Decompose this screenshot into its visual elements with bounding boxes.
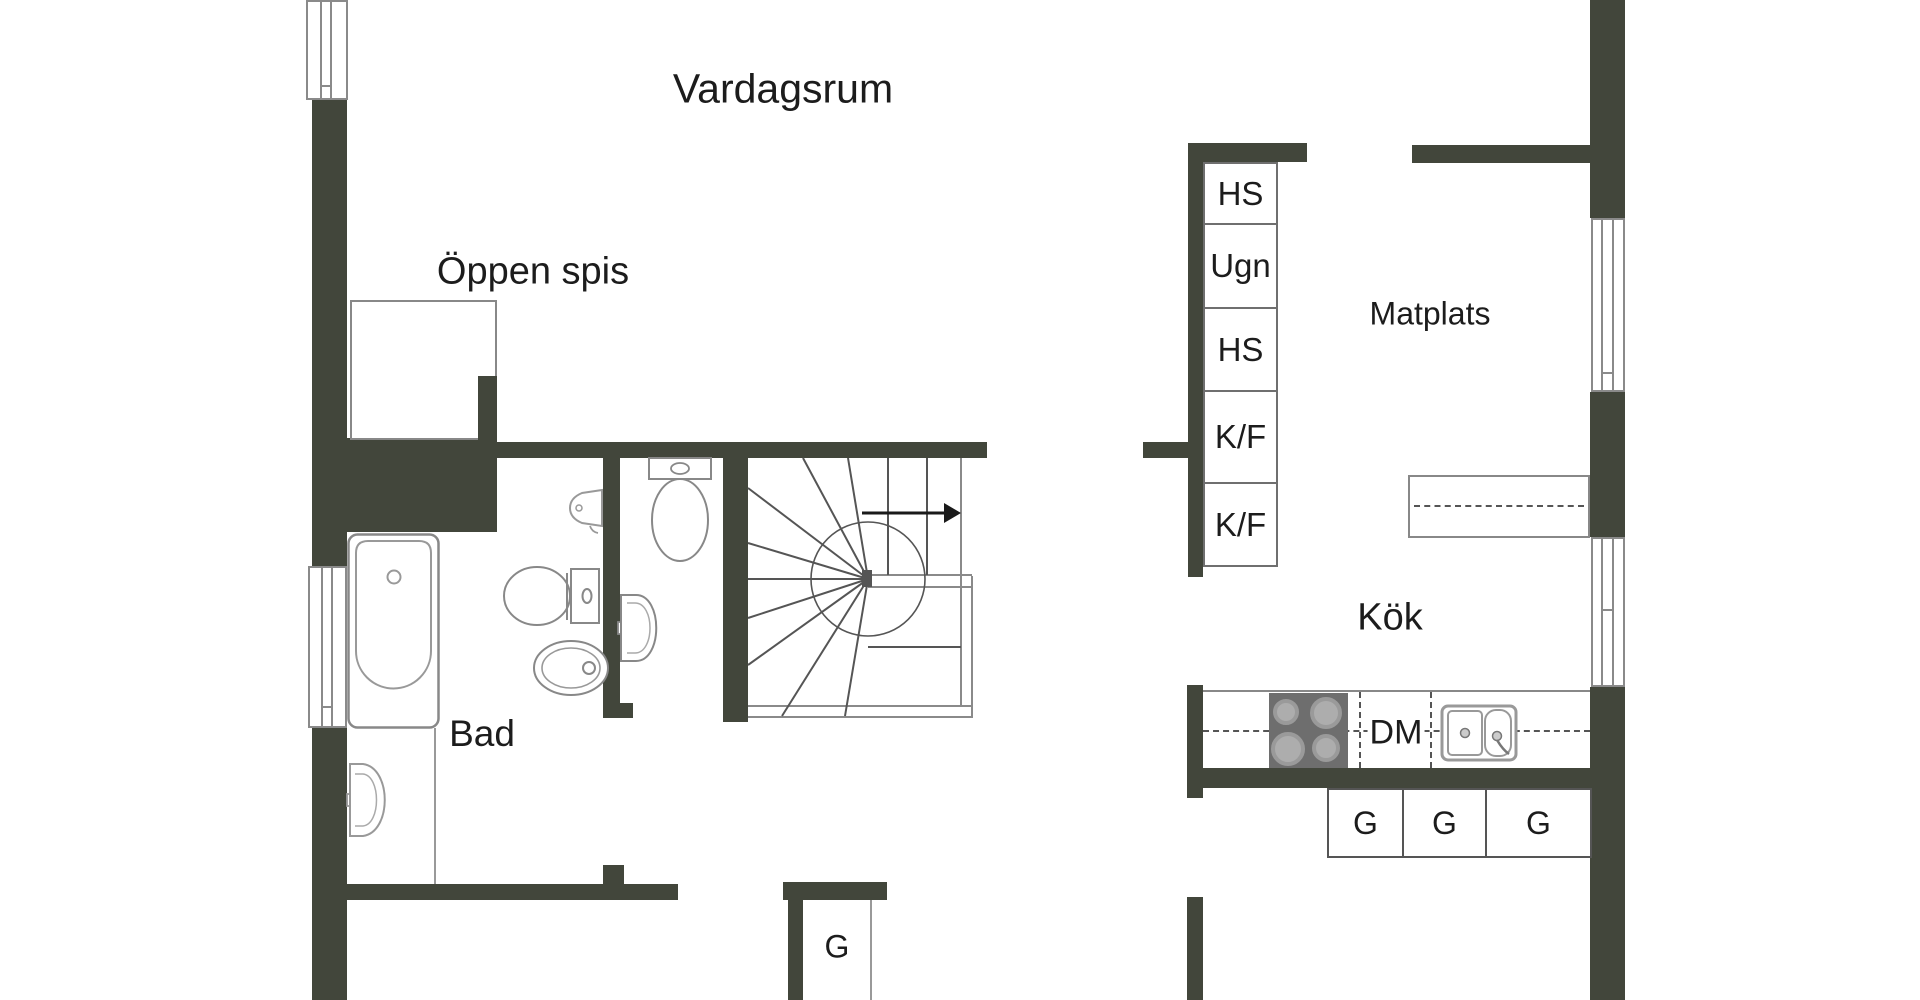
room-label-kok: Kök <box>1357 597 1422 640</box>
stair-center-post <box>862 570 872 587</box>
window-mullion <box>331 568 333 726</box>
stair-direction-arrow-icon <box>862 503 961 523</box>
window-mullion <box>1612 220 1614 390</box>
wall-right-lower <box>1590 687 1625 1000</box>
wardrobe-label: G <box>1353 805 1378 842</box>
dining-bench <box>1408 475 1590 538</box>
room-label-matplats: Matplats <box>1370 296 1491 333</box>
bidet-symbol <box>531 638 611 698</box>
window-sill-tick <box>320 85 332 87</box>
wall-right-mid <box>1590 392 1625 537</box>
wall-sink-symbol <box>568 486 604 534</box>
window-sill-tick <box>321 706 333 708</box>
shower-partition-line <box>434 728 436 884</box>
wall-closet-left <box>788 900 803 1000</box>
appliance-box-ugn: Ugn <box>1203 223 1278 309</box>
staircase-symbol <box>748 458 974 719</box>
appliance-box-kf-1: K/F <box>1203 390 1278 484</box>
window-left-top <box>306 0 348 100</box>
window-right-mid <box>1591 537 1625 687</box>
stove-symbol <box>1269 693 1348 768</box>
wardrobe-box-1: G <box>1327 788 1404 858</box>
hall-wardrobe-right-line <box>870 900 872 1000</box>
fireplace-jamb <box>478 376 497 440</box>
window-mullion <box>330 2 332 98</box>
wall-left-lower <box>312 728 347 1000</box>
bench-dashed-line <box>1414 505 1584 507</box>
appliance-label: Ugn <box>1210 247 1271 285</box>
appliance-box-hs-1: HS <box>1203 162 1278 225</box>
washbasin-symbol <box>347 758 399 842</box>
wall-top-segment-2 <box>1412 145 1592 163</box>
wall-kitchen-column <box>1188 143 1203 577</box>
fireplace-symbol <box>350 300 497 440</box>
floor-plan: HS Ugn HS K/F K/F DM G <box>0 0 1920 1000</box>
appliance-label: K/F <box>1215 506 1266 544</box>
wall-chimney-mass <box>312 438 497 532</box>
appliance-label: HS <box>1218 331 1264 369</box>
wall-top-segment-1 <box>1188 143 1307 162</box>
wardrobe-box-3: G <box>1485 788 1592 858</box>
wall-counter-bottom <box>1187 768 1590 788</box>
wall-left-mid <box>312 532 347 566</box>
window-sill-tick <box>1601 609 1614 611</box>
wall-closet-top <box>783 882 887 900</box>
wall-right-upper <box>1590 0 1625 218</box>
room-label-oppen-spis: Öppen spis <box>437 251 629 294</box>
window-sill-tick <box>1601 372 1614 374</box>
room-label-vardagsrum: Vardagsrum <box>673 66 893 113</box>
dishwasher-dash-right <box>1430 692 1432 768</box>
window-mullion <box>320 2 322 98</box>
window-mullion <box>321 568 323 726</box>
wardrobe-label: G <box>1432 805 1457 842</box>
appliance-label: K/F <box>1215 418 1266 456</box>
window-right-top <box>1591 218 1625 392</box>
appliance-box-kf-2: K/F <box>1203 482 1278 567</box>
wall-left-upper <box>312 100 347 438</box>
dishwasher-dash-left <box>1359 692 1361 768</box>
bathtub-symbol <box>347 533 440 729</box>
wall-kitchen-lower <box>1187 897 1203 1000</box>
kitchen-sink-symbol <box>1440 704 1518 762</box>
wall-horizontal-stub <box>1143 442 1188 458</box>
wardrobe-box-2: G <box>1402 788 1487 858</box>
window-mullion <box>1612 539 1614 685</box>
hall-wardrobe-label: G <box>825 929 850 966</box>
wc-toilet-symbol <box>648 456 714 564</box>
wall-bottom-left <box>343 884 678 900</box>
dishwasher-label: DM <box>1368 714 1425 753</box>
toilet-symbol <box>501 563 603 630</box>
room-label-bad: Bad <box>449 713 515 755</box>
window-mullion <box>1601 539 1603 685</box>
wardrobe-label: G <box>1526 805 1551 842</box>
wall-bad-wc-foot <box>603 703 633 718</box>
window-left-mid <box>308 566 347 728</box>
wall-stair-left <box>723 458 748 722</box>
wall-bad-lower-stub <box>603 865 624 884</box>
appliance-label: HS <box>1218 175 1264 213</box>
wc-sink-symbol <box>618 592 668 664</box>
window-mullion <box>1601 220 1603 390</box>
wall-horizontal-main <box>497 442 987 458</box>
appliance-box-hs-2: HS <box>1203 307 1278 392</box>
